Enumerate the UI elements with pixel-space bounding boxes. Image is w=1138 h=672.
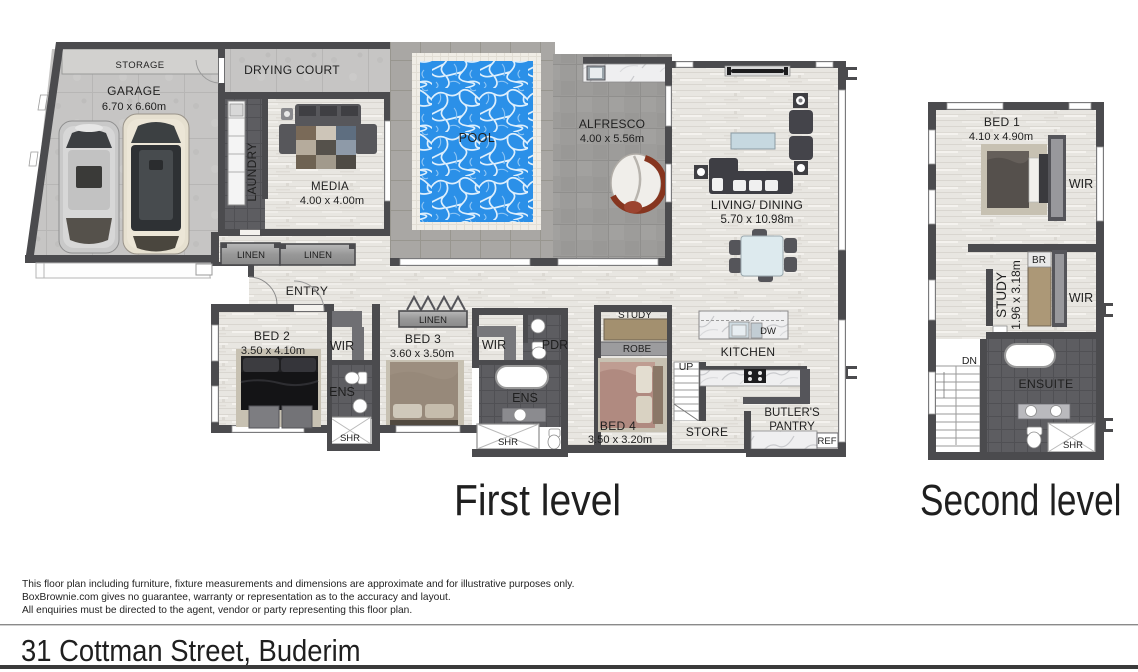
svg-text:ENSUITE: ENSUITE	[1019, 377, 1074, 391]
svg-text:ALFRESCO: ALFRESCO	[579, 117, 645, 131]
svg-text:1.96 x 3.18m: 1.96 x 3.18m	[1009, 260, 1023, 329]
svg-text:This floor plan including furn: This floor plan including furniture, fix…	[22, 579, 574, 590]
svg-text:SHR: SHR	[498, 437, 518, 448]
svg-text:BED 4: BED 4	[600, 419, 636, 433]
svg-text:UP: UP	[679, 361, 694, 373]
svg-text:4.10 x 4.90m: 4.10 x 4.90m	[969, 131, 1033, 143]
svg-text:LINEN: LINEN	[237, 250, 265, 261]
svg-text:DW: DW	[760, 326, 776, 337]
svg-text:STUDY: STUDY	[994, 272, 1009, 318]
svg-text:DN: DN	[962, 355, 977, 367]
svg-text:WIR: WIR	[482, 338, 506, 352]
svg-text:ROBE: ROBE	[623, 344, 652, 355]
svg-text:GARAGE: GARAGE	[107, 84, 161, 98]
svg-text:4.00 x 4.00m: 4.00 x 4.00m	[300, 195, 364, 207]
svg-text:Second level: Second level	[920, 476, 1121, 525]
svg-text:SHR: SHR	[340, 433, 360, 444]
svg-text:SHR: SHR	[1063, 440, 1083, 451]
svg-text:DRYING COURT: DRYING COURT	[244, 63, 340, 77]
svg-text:MEDIA: MEDIA	[311, 181, 349, 193]
svg-text:REF: REF	[818, 436, 837, 447]
svg-text:3.60 x 3.50m: 3.60 x 3.50m	[390, 348, 454, 360]
svg-text:BED 2: BED 2	[254, 329, 290, 343]
svg-text:KITCHEN: KITCHEN	[721, 345, 776, 359]
svg-text:3.50 x 3.20m: 3.50 x 3.20m	[588, 434, 652, 446]
svg-text:LIVING/ DINING: LIVING/ DINING	[711, 198, 803, 212]
svg-text:BED 1: BED 1	[984, 115, 1020, 129]
svg-text:BED 3: BED 3	[405, 332, 441, 346]
svg-text:STORAGE: STORAGE	[115, 60, 164, 71]
svg-text:WIR: WIR	[330, 339, 354, 353]
svg-text:4.00 x 5.56m: 4.00 x 5.56m	[580, 133, 644, 145]
svg-text:LAUNDRY: LAUNDRY	[245, 142, 259, 201]
svg-text:BUTLER'S: BUTLER'S	[764, 407, 820, 419]
svg-text:PDR: PDR	[542, 338, 568, 352]
svg-text:POOL: POOL	[459, 131, 496, 145]
svg-text:All enquiries must be directed: All enquiries must be directed to the ag…	[22, 605, 412, 616]
svg-text:BR: BR	[1032, 255, 1046, 266]
svg-text:ENTRY: ENTRY	[286, 284, 328, 298]
svg-text:First level: First level	[454, 475, 621, 525]
svg-text:WIR: WIR	[1069, 177, 1093, 191]
svg-text:6.70 x 6.60m: 6.70 x 6.60m	[102, 101, 166, 113]
svg-text:31 Cottman Street, Buderim: 31 Cottman Street, Buderim	[21, 635, 361, 669]
svg-text:3.50 x 4.10m: 3.50 x 4.10m	[241, 345, 305, 357]
svg-text:ENS: ENS	[329, 385, 355, 399]
svg-text:WIR: WIR	[1069, 291, 1093, 305]
svg-text:LINEN: LINEN	[419, 315, 447, 326]
svg-text:5.70 x 10.98m: 5.70 x 10.98m	[721, 214, 794, 226]
svg-text:BoxBrownie.com gives no guaran: BoxBrownie.com gives no guarantee, warra…	[22, 592, 451, 603]
svg-text:ENS: ENS	[512, 391, 538, 405]
svg-text:STORE: STORE	[686, 425, 729, 439]
svg-text:LINEN: LINEN	[304, 250, 332, 261]
